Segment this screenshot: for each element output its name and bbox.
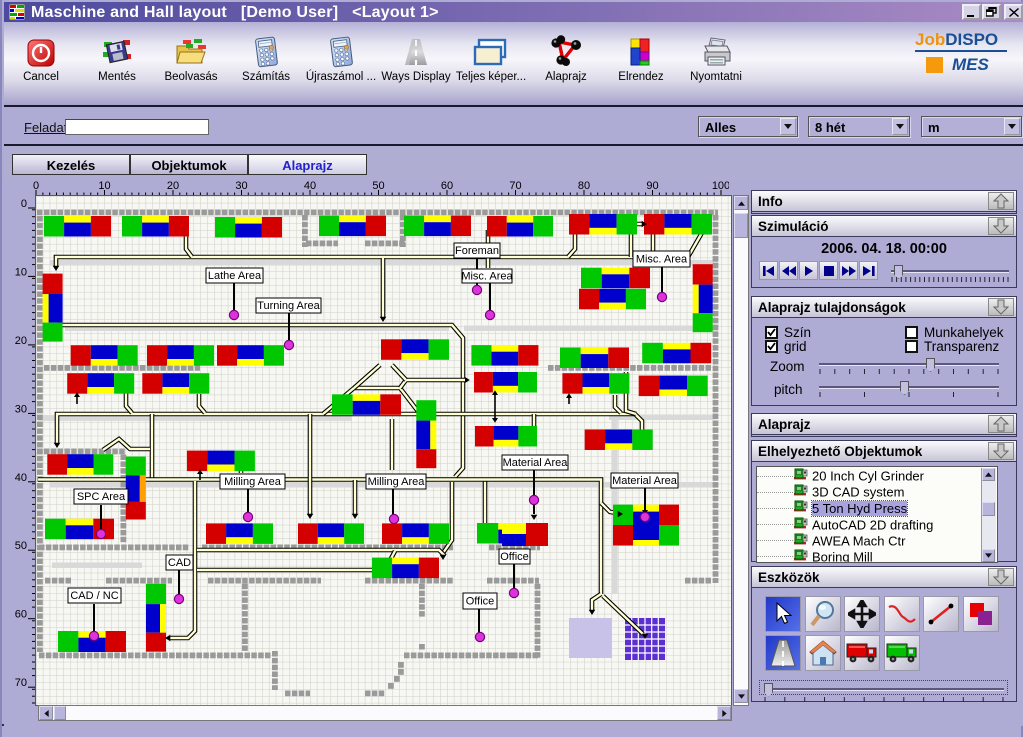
svg-text:40: 40 <box>15 472 27 484</box>
svg-text:30: 30 <box>15 403 27 415</box>
svg-text:Office: Office <box>466 596 495 608</box>
svg-text:0: 0 <box>21 198 27 210</box>
svg-text:Turning Area: Turning Area <box>257 300 320 312</box>
svg-text:Milling Area: Milling Area <box>368 476 426 488</box>
svg-text:Misc. Area: Misc. Area <box>461 271 513 283</box>
svg-text:50: 50 <box>15 540 27 552</box>
svg-text:Milling Area: Milling Area <box>224 476 282 488</box>
svg-text:SPC Area: SPC Area <box>77 491 126 503</box>
svg-text:100: 100 <box>712 180 729 192</box>
svg-text:10: 10 <box>15 266 27 278</box>
svg-text:CAD: CAD <box>168 557 191 569</box>
svg-text:Material Area: Material Area <box>503 457 569 469</box>
svg-text:Office: Office <box>500 551 529 563</box>
svg-text:Misc. Area: Misc. Area <box>636 254 688 266</box>
svg-text:Material Area: Material Area <box>612 475 678 487</box>
svg-text:Lathe Area: Lathe Area <box>208 270 262 282</box>
svg-text:70: 70 <box>15 677 27 689</box>
svg-text:Foreman: Foreman <box>455 245 499 257</box>
svg-text:60: 60 <box>15 609 27 621</box>
svg-text:CAD / NC: CAD / NC <box>70 590 118 602</box>
svg-text:20: 20 <box>15 335 27 347</box>
